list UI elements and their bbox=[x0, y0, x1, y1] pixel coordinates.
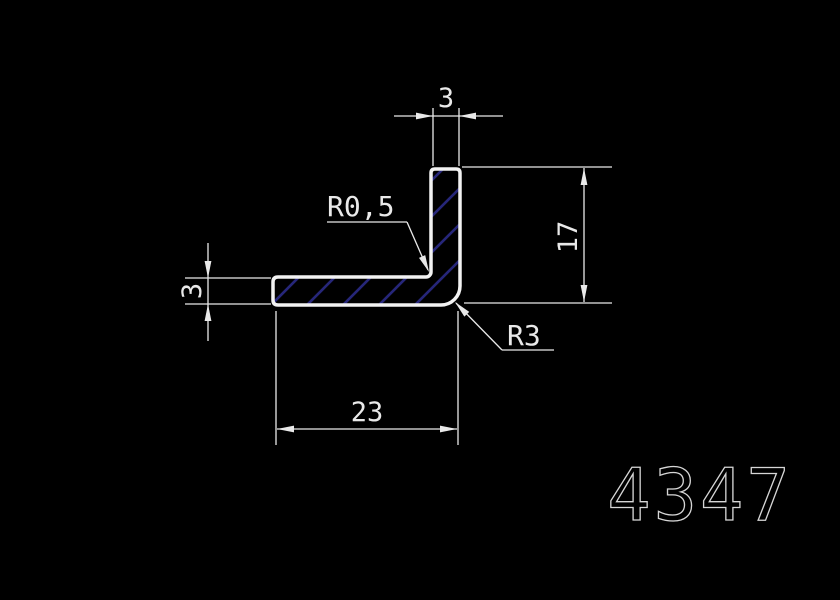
dim-left-thickness-label[interactable]: 3 bbox=[177, 283, 208, 299]
dim-top-width-label[interactable]: 3 bbox=[438, 83, 454, 114]
cad-drawing: 3 3 17 23 R0,5 R3 4347 bbox=[0, 0, 840, 600]
inner-fillet-radius-label[interactable]: R0,5 bbox=[327, 190, 394, 223]
outer-fillet-radius-label[interactable]: R3 bbox=[507, 319, 541, 352]
cad-viewport[interactable]: 3 3 17 23 R0,5 R3 4347 bbox=[0, 0, 840, 600]
dim-bottom-width-label[interactable]: 23 bbox=[351, 397, 384, 428]
part-number-label[interactable]: 4347 bbox=[607, 453, 792, 537]
dim-right-height-label[interactable]: 17 bbox=[553, 221, 584, 254]
